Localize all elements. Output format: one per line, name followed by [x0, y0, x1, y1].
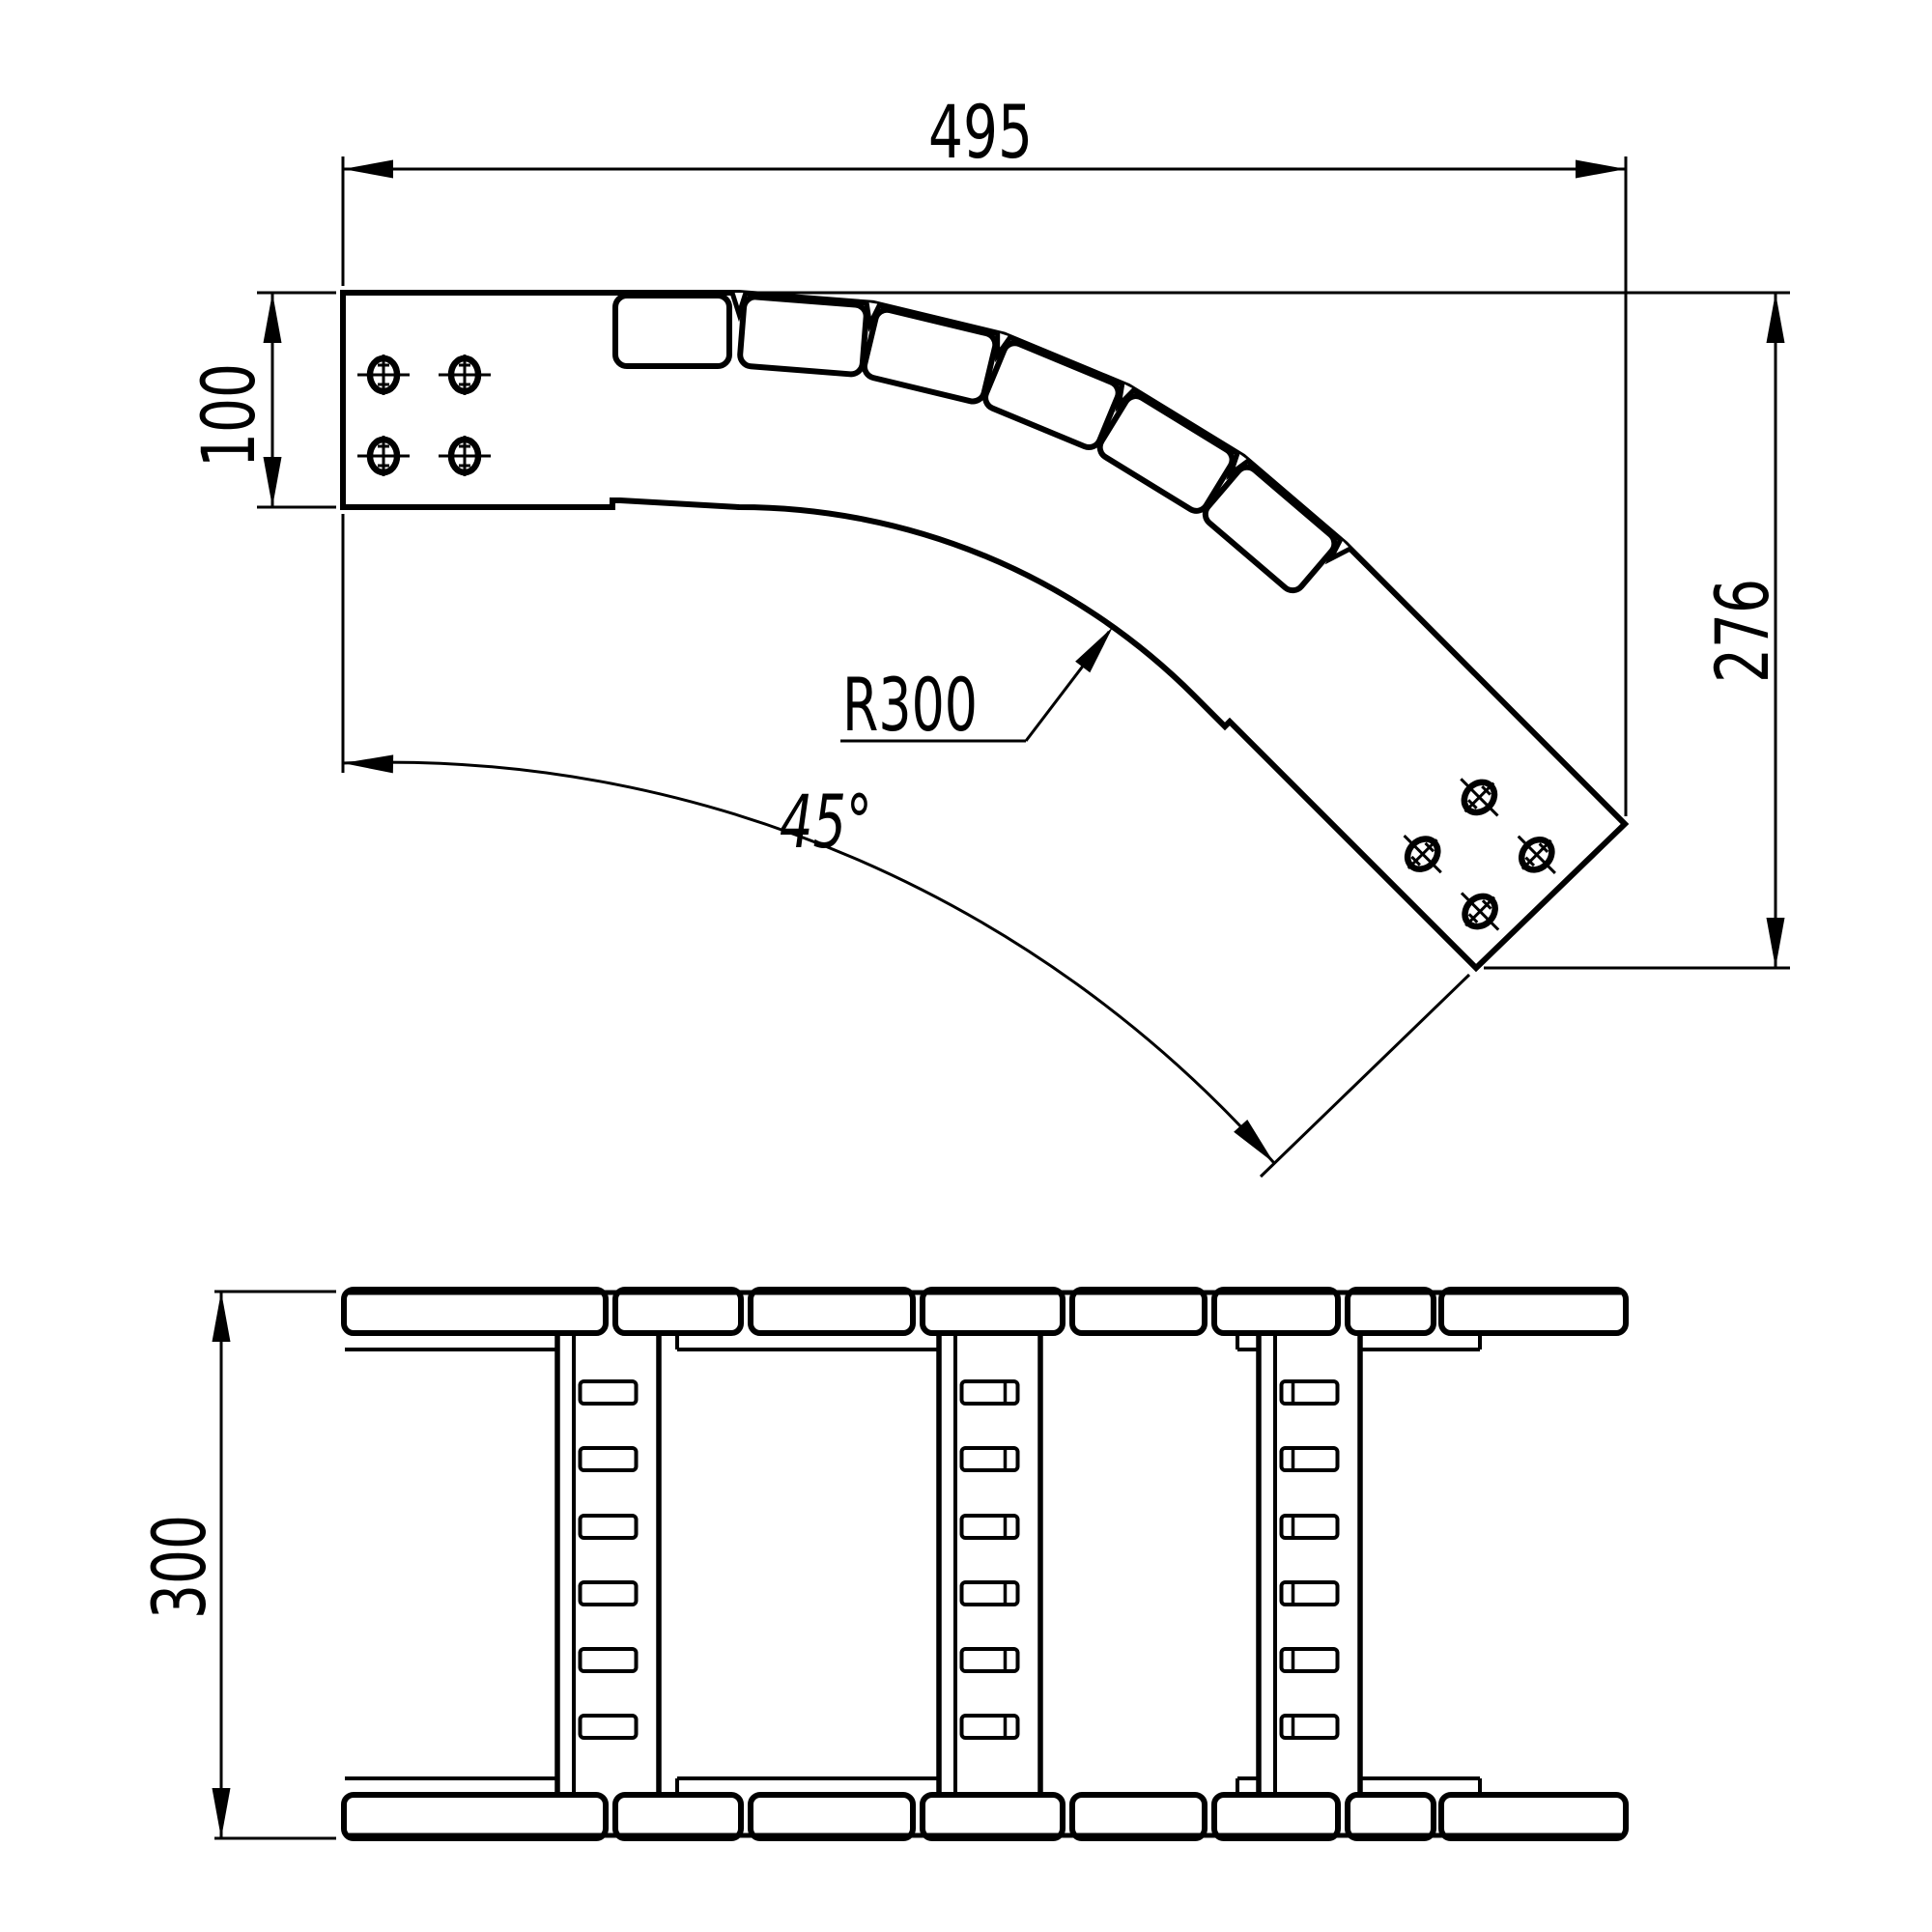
top-view-45-bend [343, 293, 1625, 968]
rung-slot [962, 1649, 1018, 1671]
bend-plate [862, 307, 997, 404]
rail-band-segment [615, 1290, 741, 1333]
rail-band-segment [615, 1795, 741, 1838]
mounting-slots-right-end [1390, 764, 1570, 944]
rail-flange-bands [344, 1290, 1626, 1838]
slot-hole-icon [1447, 879, 1513, 945]
rail-band-segment [1214, 1290, 1338, 1333]
rung-slot [962, 1381, 1018, 1404]
rung-slot [962, 1516, 1018, 1538]
dimension-100: 100 [185, 293, 336, 507]
rung-slot [581, 1649, 637, 1671]
rail-band-segment [1441, 1290, 1626, 1333]
rung-slot [1282, 1448, 1338, 1470]
mounting-slots-left-end [357, 355, 491, 476]
rung-slot [1282, 1381, 1338, 1404]
dimension-text-height: 276 [1699, 579, 1785, 683]
dimension-arrow [343, 754, 393, 774]
dimension-300: 300 [136, 1292, 336, 1838]
dimension-arrow [1767, 918, 1785, 968]
slot-hole-icon [357, 436, 410, 476]
rail-band-segment [1348, 1795, 1434, 1838]
dimension-arrow [1767, 293, 1785, 343]
bend-plate [739, 297, 867, 376]
rungs-with-slots [557, 1333, 1360, 1795]
bend-plate [615, 296, 729, 366]
slot-hole-icon [1504, 822, 1570, 888]
rung-slot [1282, 1582, 1338, 1605]
radius-leader-R300: R300 [840, 621, 1121, 748]
dimension-495: 495 [343, 89, 1626, 816]
rung-slot [581, 1448, 637, 1470]
drawing-page: 495 100 276 R300 45° 300 [0, 0, 1932, 1932]
radius-text: R300 [842, 662, 978, 748]
technical-drawing: 495 100 276 R300 45° 300 [0, 0, 1932, 1932]
rung [557, 1333, 659, 1795]
rung-slot [962, 1716, 1018, 1738]
rung-slot [581, 1582, 637, 1605]
slot-hole-icon [357, 355, 410, 395]
dimension-arrow [343, 160, 393, 179]
rung-slot [1282, 1716, 1338, 1738]
rung-slot [962, 1582, 1018, 1605]
rung-slot [581, 1381, 637, 1404]
rail-band-segment [923, 1795, 1063, 1838]
bend-plate [981, 340, 1122, 451]
dimension-arrow [264, 293, 282, 343]
slot-hole-icon [1446, 764, 1512, 830]
rail-band-segment [751, 1290, 913, 1333]
rung-slot [1282, 1516, 1338, 1538]
dimension-text-rail-height: 100 [185, 363, 271, 468]
slot-hole-icon [439, 355, 491, 395]
rail-band-segment [1214, 1795, 1338, 1838]
rail-band-segment [1441, 1795, 1626, 1838]
angle-text: 45° [780, 779, 872, 865]
dimension-276: 276 [744, 293, 1790, 968]
rung-slot [1282, 1649, 1338, 1671]
dimension-45-degrees: 45° [343, 514, 1469, 1177]
rung [939, 1333, 1040, 1795]
rung-slot [962, 1448, 1018, 1470]
dimension-arrow [1576, 160, 1626, 179]
rung [1259, 1333, 1360, 1795]
rail-band-segment [1072, 1290, 1205, 1333]
extension-line [1261, 975, 1469, 1177]
dimension-text-width: 495 [928, 89, 1033, 175]
dimension-arrow [213, 1292, 231, 1342]
rail-band-segment [751, 1795, 913, 1838]
dimension-arrow [213, 1788, 231, 1838]
rung-slot [581, 1716, 637, 1738]
rung-slot [581, 1516, 637, 1538]
slot-hole-icon [1390, 821, 1456, 887]
rail-band-segment [1072, 1795, 1205, 1838]
rail-band-segment [923, 1290, 1063, 1333]
dimension-text-tray-width: 300 [136, 1515, 222, 1619]
bottom-view-ladder [344, 1290, 1626, 1838]
rail-band-segment [1348, 1290, 1434, 1333]
slot-hole-icon [439, 436, 491, 476]
rail-band-segment [344, 1290, 606, 1333]
rail-band-segment [344, 1795, 606, 1838]
